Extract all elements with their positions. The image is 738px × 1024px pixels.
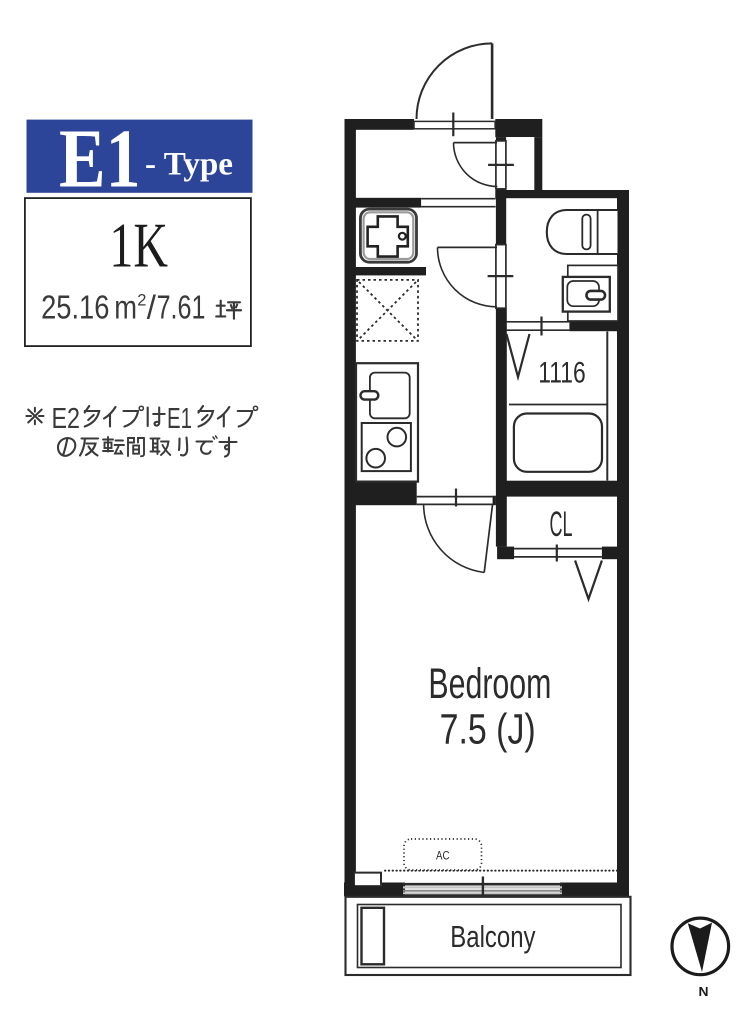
svg-text:7.5 (J): 7.5 (J) (440, 706, 536, 754)
svg-text:N: N (699, 984, 709, 999)
svg-text:/: / (147, 289, 157, 326)
svg-text:25.16: 25.16 (41, 289, 109, 326)
svg-text:m: m (114, 289, 137, 326)
svg-text:E2: E2 (52, 403, 81, 435)
svg-text:- Type: - Type (145, 146, 233, 182)
svg-text:1K: 1K (109, 209, 168, 280)
svg-text:Bedroom: Bedroom (428, 660, 551, 708)
svg-text:2: 2 (137, 292, 146, 310)
svg-text:Balcony: Balcony (450, 920, 536, 954)
svg-text:E1: E1 (167, 403, 192, 435)
svg-text:E1: E1 (59, 112, 141, 205)
svg-text:AC: AC (436, 848, 450, 862)
svg-text:1116: 1116 (538, 356, 585, 389)
svg-text:CL: CL (550, 505, 573, 544)
svg-text:7.61: 7.61 (157, 289, 206, 326)
